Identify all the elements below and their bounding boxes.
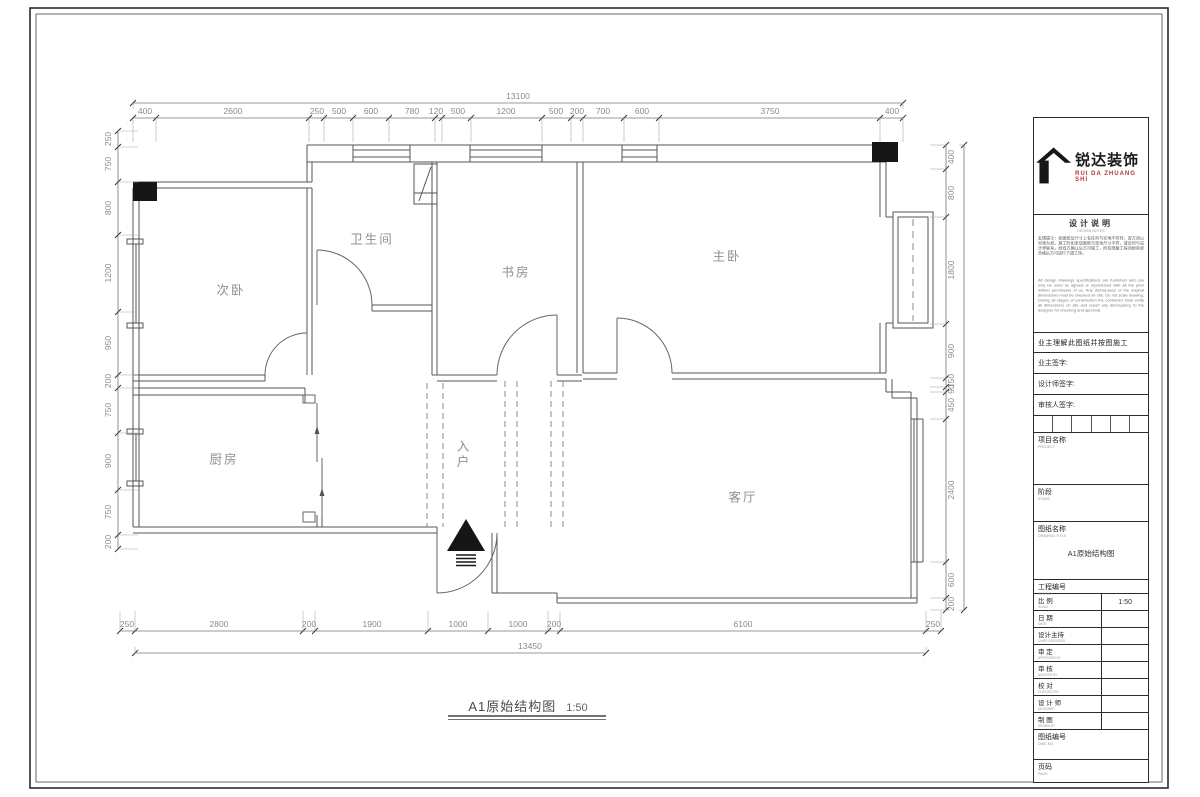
svg-text:250: 250 xyxy=(103,132,113,146)
plan-title-scale: 1:50 xyxy=(566,702,587,714)
svg-text:120: 120 xyxy=(429,106,443,116)
page-field: 页码 PAGE xyxy=(1034,759,1148,782)
plan-title-text: A1原始结构图 xyxy=(468,699,556,714)
job-no-field: 工程编号 JOB NO. xyxy=(1034,579,1148,593)
date-row: 日 期 DATE xyxy=(1034,610,1148,627)
svg-text:600: 600 xyxy=(635,106,649,116)
svg-text:1200: 1200 xyxy=(497,106,516,116)
svg-text:900: 900 xyxy=(946,344,956,358)
designer-row: 设 计 师 DESIGNER xyxy=(1034,695,1148,712)
svg-text:1000: 1000 xyxy=(509,619,528,629)
svg-text:2600: 2600 xyxy=(224,106,243,116)
svg-text:500: 500 xyxy=(332,106,346,116)
title-block: 锐达装饰 RUI DA ZHUANG SHI 设计说明 DESIGN NOTES… xyxy=(1033,117,1149,783)
svg-text:200: 200 xyxy=(302,619,316,629)
svg-text:600: 600 xyxy=(946,573,956,587)
svg-text:900: 900 xyxy=(103,454,113,468)
stage-field: 阶段 STAGE xyxy=(1034,484,1148,521)
design-notes-subheading: DESIGN NOTES xyxy=(1067,229,1115,231)
floor-plan-canvas: 1310040026002505006007801205001200500200… xyxy=(0,0,1200,797)
project-name-field: 项目名称 PROJECT xyxy=(1034,432,1148,484)
revision-cells xyxy=(1034,415,1148,432)
svg-text:1900: 1900 xyxy=(363,619,382,629)
scale-value: 1:50 xyxy=(1102,594,1148,610)
svg-text:800: 800 xyxy=(103,201,113,215)
svg-text:250: 250 xyxy=(926,619,940,629)
svg-text:500: 500 xyxy=(451,106,465,116)
design-notes-heading: 设计说明 xyxy=(1038,218,1144,229)
svg-text:200: 200 xyxy=(103,535,113,549)
svg-text:2800: 2800 xyxy=(210,619,229,629)
svg-text:750: 750 xyxy=(103,403,113,417)
svg-text:500: 500 xyxy=(549,106,563,116)
entry-arrow-icon xyxy=(447,519,485,566)
svg-text:200: 200 xyxy=(103,374,113,388)
svg-text:2400: 2400 xyxy=(946,480,956,499)
audited-by-row: 审 核 AUDITED BY xyxy=(1034,661,1148,678)
approved-by-row: 审 定 APPROVED BY xyxy=(1034,644,1148,661)
svg-text:400: 400 xyxy=(946,150,956,164)
svg-text:750: 750 xyxy=(103,157,113,171)
svg-text:200: 200 xyxy=(946,597,956,611)
title-underline xyxy=(448,716,606,720)
checked-by-row: 校 对 CHECKED BY xyxy=(1034,678,1148,695)
svg-text:950: 950 xyxy=(103,336,113,350)
beam-dashed-lines xyxy=(427,381,563,531)
svg-text:780: 780 xyxy=(405,106,419,116)
svg-text:1800: 1800 xyxy=(946,260,956,279)
svg-text:750: 750 xyxy=(103,505,113,519)
bathroom-fixture xyxy=(414,164,437,204)
company-logo: 锐达装饰 RUI DA ZHUANG SHI xyxy=(1034,118,1148,214)
svg-text:450: 450 xyxy=(946,398,956,412)
svg-text:400: 400 xyxy=(885,106,899,116)
sheet-frame xyxy=(30,8,1168,788)
owner-acknowledgement: 业主理解此图纸并按图施工 xyxy=(1034,332,1148,352)
svg-text:90: 90 xyxy=(946,384,956,394)
chief-designer-row: 设计主持 CHIEF DESIGNER xyxy=(1034,627,1148,644)
column-top-right xyxy=(872,142,898,162)
drawing-title-field: 图纸名称 DRAWING TITLE A1原始结构图 xyxy=(1034,521,1148,579)
svg-text:3750: 3750 xyxy=(761,106,780,116)
svg-text:200: 200 xyxy=(547,619,561,629)
dwg-no-field: 图纸编号 DWG NO. xyxy=(1034,729,1148,759)
svg-text:250: 250 xyxy=(310,106,324,116)
walls xyxy=(133,145,917,603)
logo-name-en: RUI DA ZHUANG SHI xyxy=(1075,171,1148,183)
owner-signature-row: 业主签字: xyxy=(1034,352,1148,373)
svg-text:1000: 1000 xyxy=(449,619,468,629)
svg-text:13450: 13450 xyxy=(518,641,542,651)
column-top-left xyxy=(133,182,157,201)
design-notes-cn: 友情提示：如图纸及尺寸上有任何与实地不符时，双方须以实地为准。施工时如发现图纸与… xyxy=(1038,236,1144,256)
drawn-by-row: 制 图 DRAWN BY xyxy=(1034,712,1148,729)
svg-text:700: 700 xyxy=(596,106,610,116)
designer-signature-row: 设计师签字: xyxy=(1034,373,1148,394)
logo-name-cn: 锐达装饰 xyxy=(1075,149,1148,170)
svg-text:1200: 1200 xyxy=(103,263,113,282)
svg-text:6100: 6100 xyxy=(734,619,753,629)
drawing-sheet: 1310040026002505006007801205001200500200… xyxy=(0,0,1200,797)
house-logo-icon xyxy=(1034,143,1072,189)
design-notes-en: All design drawings specifications are f… xyxy=(1038,278,1144,313)
windows xyxy=(127,145,933,562)
drawing-title-value: A1原始结构图 xyxy=(1034,548,1148,559)
design-notes: 设计说明 DESIGN NOTES 友情提示：如图纸及尺寸上有任何与实地不符时，… xyxy=(1034,214,1148,332)
plan-title: A1原始结构图1:50 xyxy=(446,696,610,715)
svg-text:600: 600 xyxy=(364,106,378,116)
svg-text:200: 200 xyxy=(570,106,584,116)
auditor-signature-row: 审核人签字: xyxy=(1034,394,1148,415)
columns xyxy=(133,142,898,201)
svg-text:13100: 13100 xyxy=(506,91,530,101)
svg-text:800: 800 xyxy=(946,186,956,200)
svg-text:400: 400 xyxy=(138,106,152,116)
svg-text:250: 250 xyxy=(120,619,134,629)
